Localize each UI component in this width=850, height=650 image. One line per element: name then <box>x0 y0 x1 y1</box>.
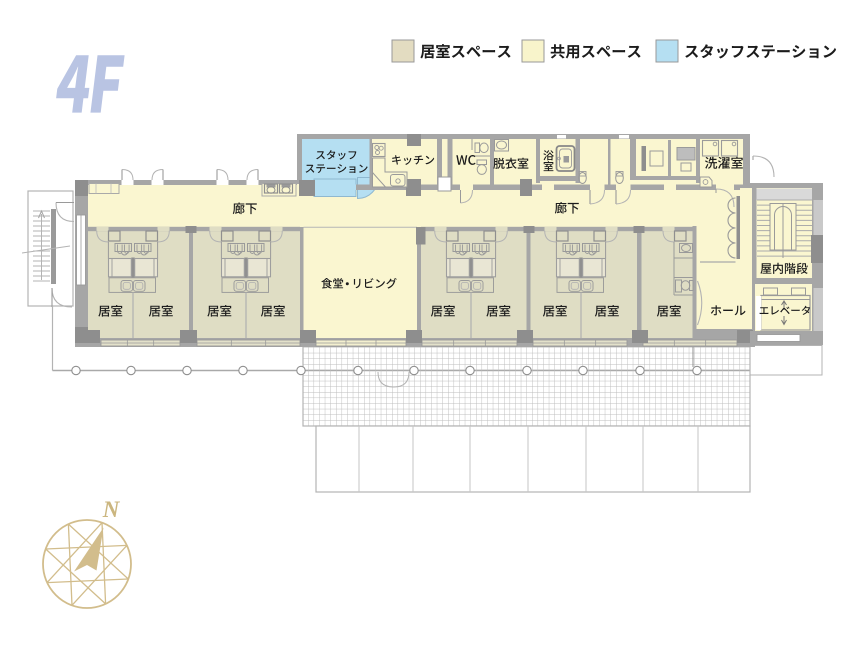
svg-text:N: N <box>102 497 121 522</box>
